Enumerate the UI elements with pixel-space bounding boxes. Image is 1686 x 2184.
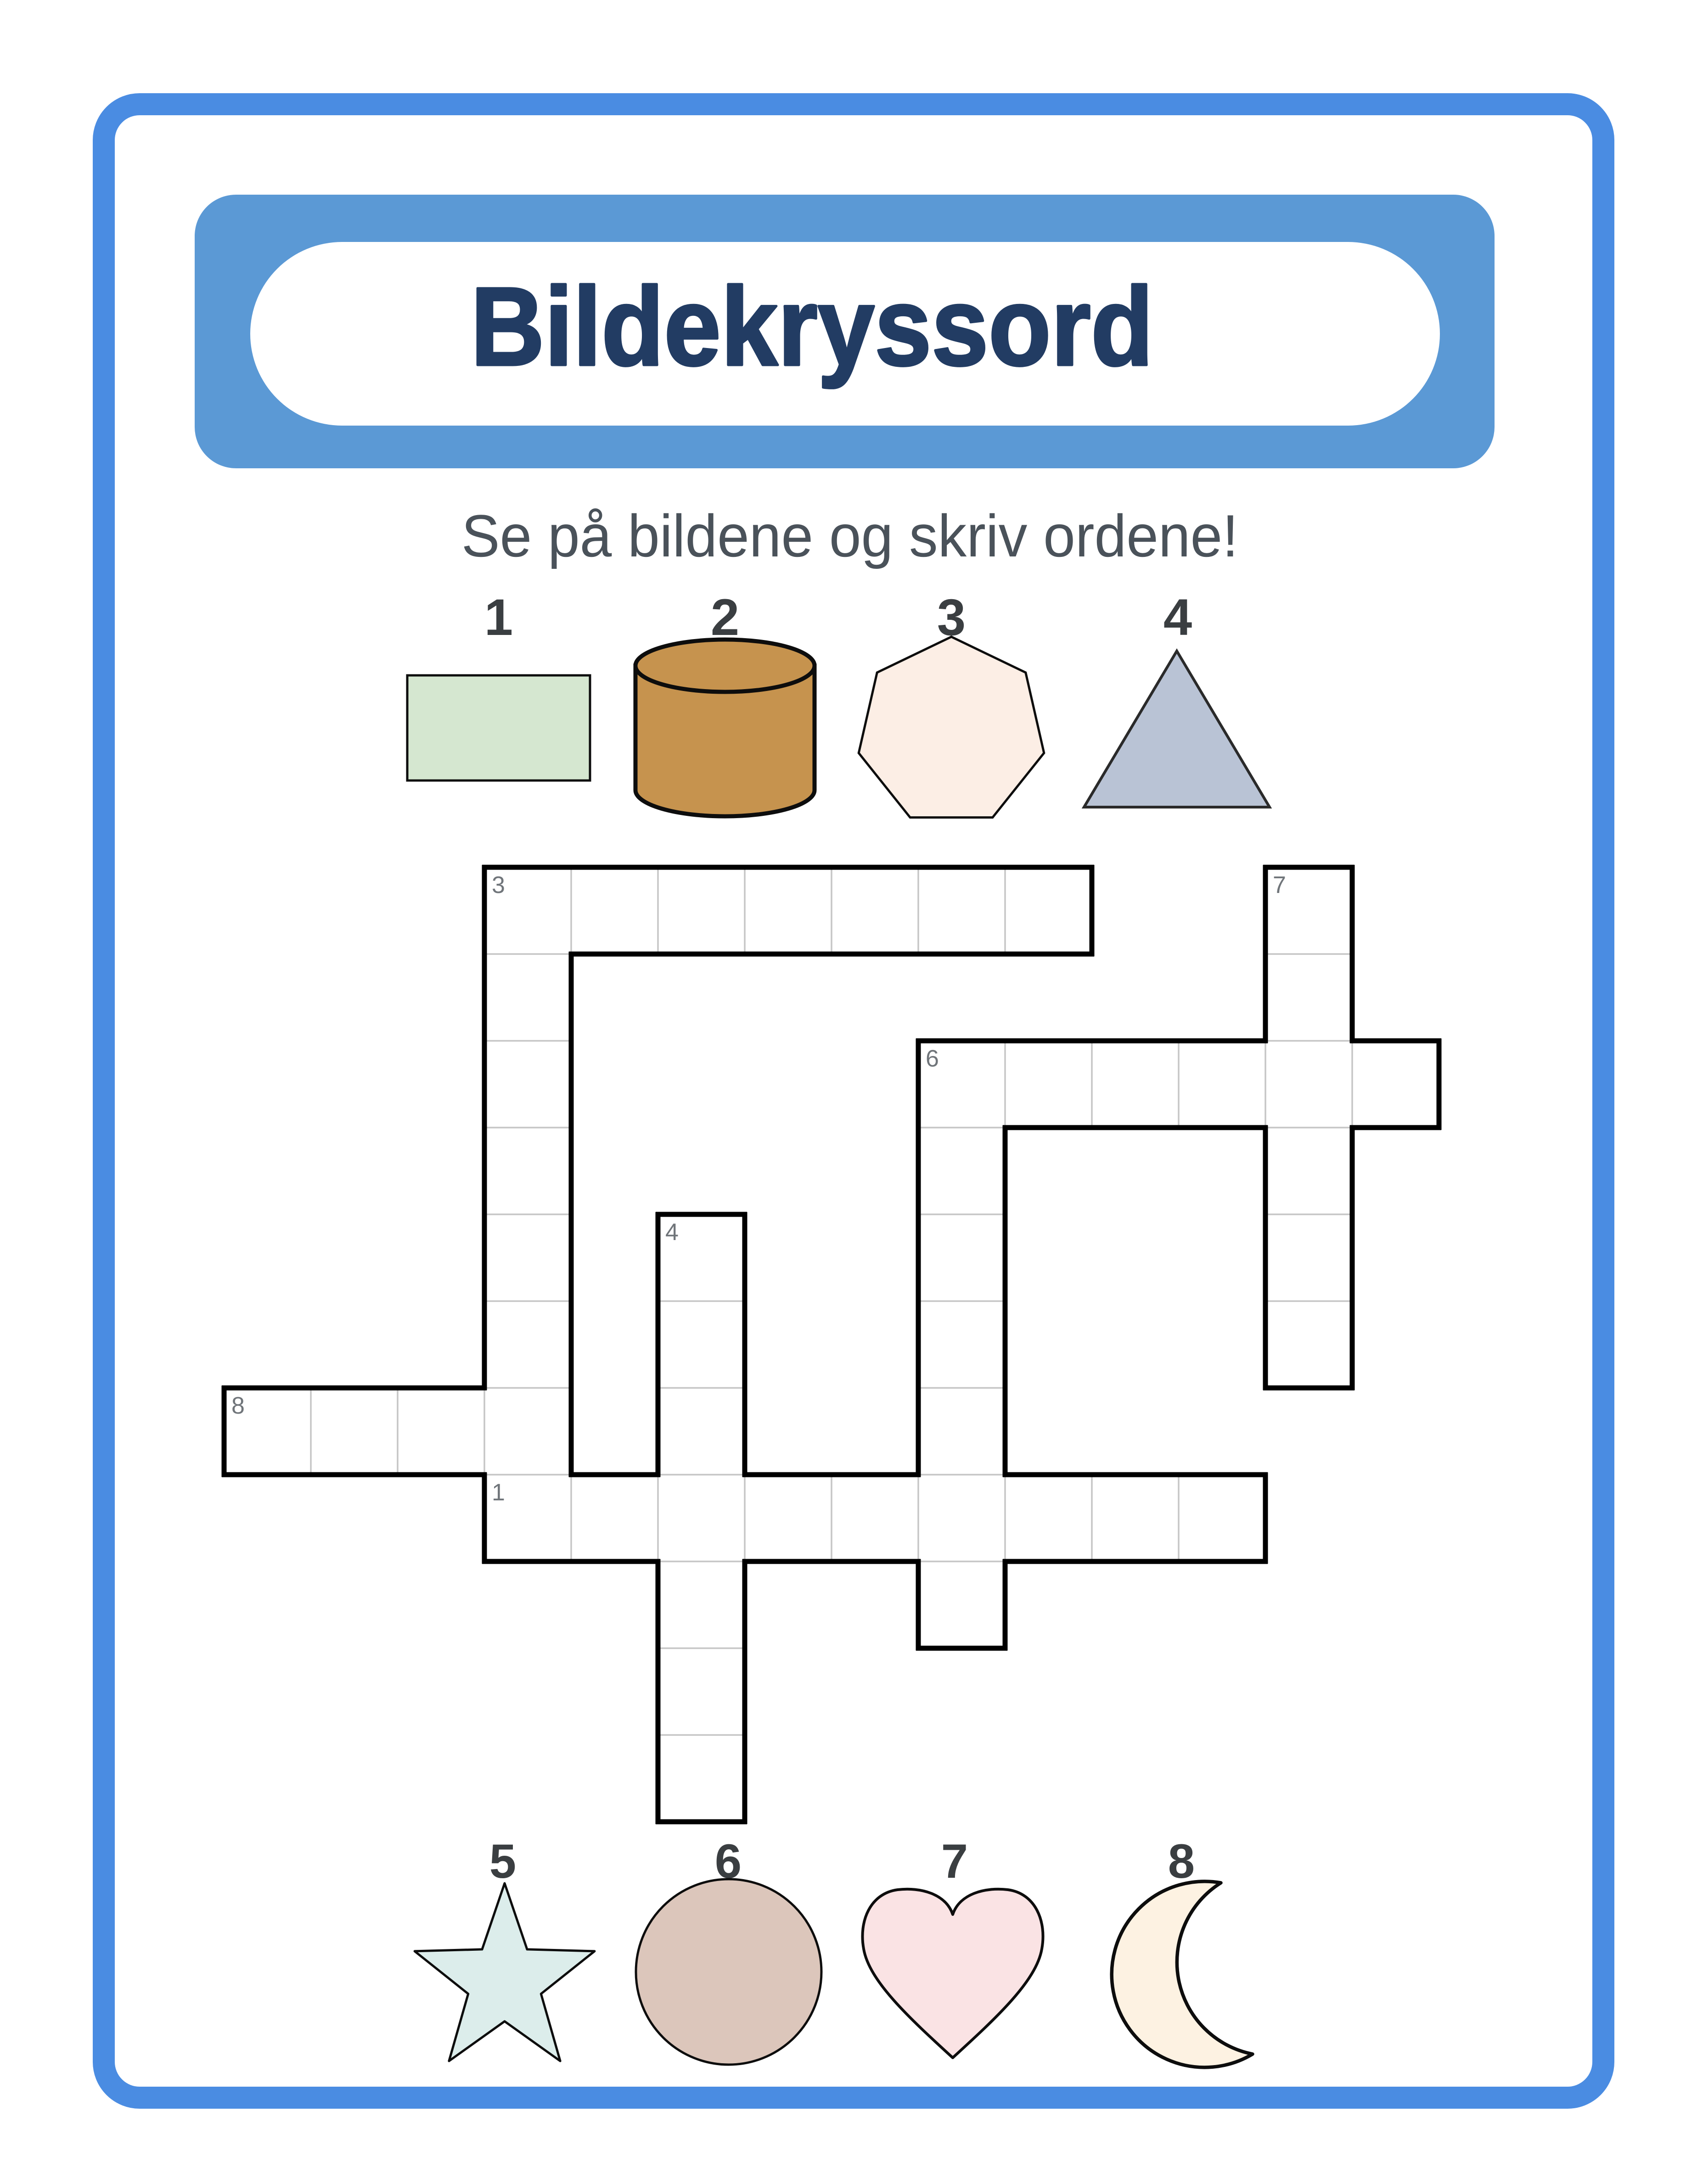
svg-text:2: 2 [711,589,739,646]
svg-text:7: 7 [1273,872,1286,898]
svg-text:7: 7 [941,1835,968,1888]
svg-text:4: 4 [665,1219,679,1246]
svg-text:1: 1 [484,589,513,646]
svg-text:Bildekryssord: Bildekryssord [471,264,1153,389]
svg-text:8: 8 [1168,1835,1195,1888]
svg-text:3: 3 [492,872,505,898]
svg-text:6: 6 [926,1045,939,1072]
svg-text:8: 8 [231,1392,245,1419]
svg-text:Se på bildene og skriv ordene!: Se på bildene og skriv ordene! [461,502,1238,569]
svg-text:1: 1 [492,1479,505,1506]
svg-text:4: 4 [1163,589,1192,646]
svg-text:5: 5 [489,1835,516,1888]
